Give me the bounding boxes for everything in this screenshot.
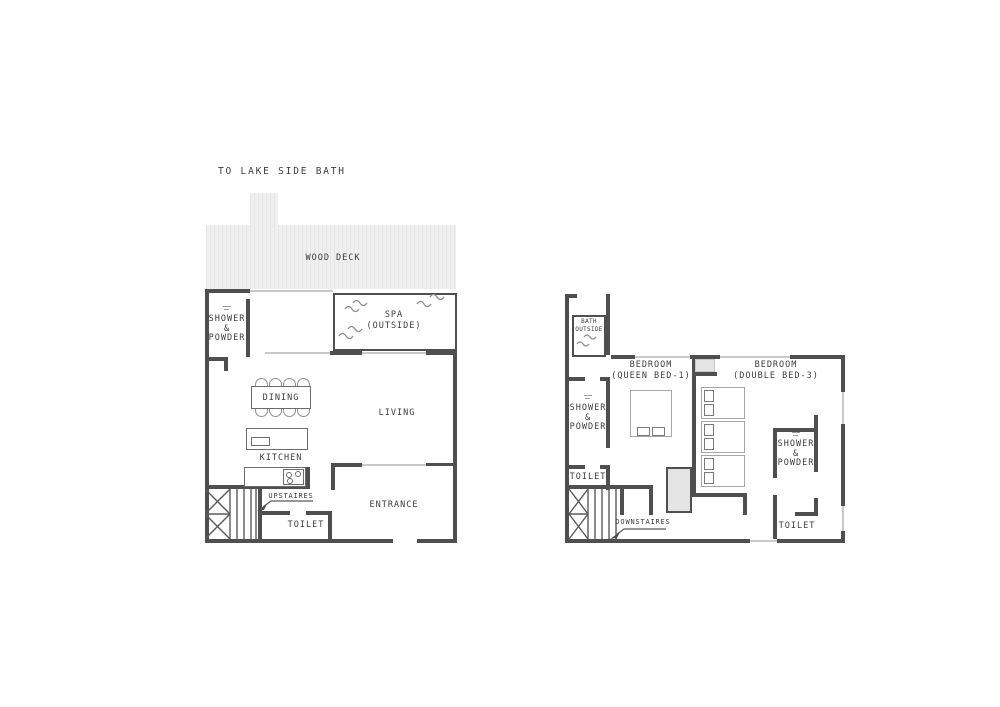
wall <box>814 415 818 472</box>
wall <box>246 299 250 357</box>
dining-label: DINING <box>263 393 300 404</box>
shower-icon <box>221 305 233 311</box>
sink-icon <box>251 437 270 446</box>
floor-plan-canvas: TO LAKE SIDE BATH WOOD DECK SPA (OUTSIDE… <box>0 0 1000 707</box>
toilet-label-ground: TOILET <box>288 520 325 531</box>
wall <box>453 351 457 543</box>
closet <box>666 467 692 513</box>
shower-powder-label: SHOWER & POWDER <box>209 315 246 344</box>
water-wave-icon <box>416 292 450 310</box>
window-line <box>842 392 844 424</box>
water-wave-icon <box>576 333 602 349</box>
window-line <box>362 464 426 466</box>
bath-label: BATH (OUTSIDE) <box>571 318 606 333</box>
chair-icon <box>283 378 296 386</box>
wall <box>328 511 332 541</box>
wall <box>330 351 362 355</box>
wall <box>417 539 457 543</box>
wall <box>224 357 228 371</box>
pillow-icon <box>704 404 714 416</box>
shower-icon <box>790 431 802 437</box>
chair-icon <box>297 409 310 417</box>
chair-icon <box>297 378 310 386</box>
window-line <box>720 356 790 358</box>
entrance-label: ENTRANCE <box>370 500 419 511</box>
window-line <box>250 290 333 292</box>
chair-icon <box>269 409 282 417</box>
queen-bed <box>630 390 672 437</box>
wall <box>426 463 457 466</box>
downstairs-arrow-icon <box>608 526 668 540</box>
pillow-icon <box>652 427 665 436</box>
wall <box>606 381 610 448</box>
spa-label: SPA (OUTSIDE) <box>366 310 421 332</box>
double-bed <box>701 455 745 487</box>
wall <box>777 539 845 543</box>
pillow-icon <box>704 438 714 450</box>
double-bed <box>701 387 745 419</box>
chair-icon <box>269 378 282 386</box>
wall <box>205 289 250 293</box>
upstairs-arrow-icon <box>255 498 315 512</box>
pillow-icon <box>704 390 714 402</box>
window-line <box>750 540 777 542</box>
shower-powder-left-label: SHOWER & POWDER <box>570 404 607 433</box>
wall <box>795 512 818 516</box>
living-label: LIVING <box>379 408 416 419</box>
double-bed <box>701 421 745 453</box>
wall <box>692 357 696 497</box>
wall <box>565 294 577 298</box>
wall <box>565 465 585 469</box>
kitchen-label: KITCHEN <box>260 453 303 464</box>
wall <box>743 497 747 515</box>
stairs-up <box>205 485 262 543</box>
closet <box>695 359 715 372</box>
stove-icon <box>283 469 304 485</box>
kitchen-counter <box>244 467 306 487</box>
window-line <box>362 352 426 354</box>
wood-deck-label: WOOD DECK <box>305 253 360 264</box>
pillow-icon <box>704 472 714 484</box>
bedroom-queen-label: BEDROOM (QUEEN BED-1) <box>611 360 691 382</box>
to-lake-side-bath-label: TO LAKE SIDE BATH <box>218 166 346 177</box>
deck-walkway <box>250 193 278 226</box>
shower-powder-right-label: SHOWER & POWDER <box>778 440 815 469</box>
wall <box>331 463 335 490</box>
chair-icon <box>255 409 268 417</box>
wall <box>773 495 777 539</box>
wall <box>694 493 747 497</box>
wall <box>841 424 845 506</box>
window-line <box>635 356 690 358</box>
toilet-left-label: TOILET <box>570 472 607 483</box>
toilet-right-label: TOILET <box>779 521 816 532</box>
chair-icon <box>255 378 268 386</box>
wall <box>565 377 585 381</box>
shower-icon <box>582 394 594 400</box>
chair-icon <box>283 409 296 417</box>
kitchen-island <box>246 428 308 450</box>
wall <box>331 463 362 467</box>
wall <box>611 355 635 359</box>
window-line <box>842 506 844 531</box>
water-wave-icon <box>338 324 368 342</box>
wall <box>695 372 717 376</box>
wall <box>841 357 845 392</box>
window-line <box>265 352 330 354</box>
bedroom-double-label: BEDROOM (DOUBLE BED-3) <box>733 360 819 382</box>
wall <box>773 428 777 478</box>
pillow-icon <box>704 458 714 470</box>
wall <box>649 489 653 515</box>
pillow-icon <box>704 424 714 436</box>
wall <box>790 355 845 359</box>
pillow-icon <box>637 427 650 436</box>
